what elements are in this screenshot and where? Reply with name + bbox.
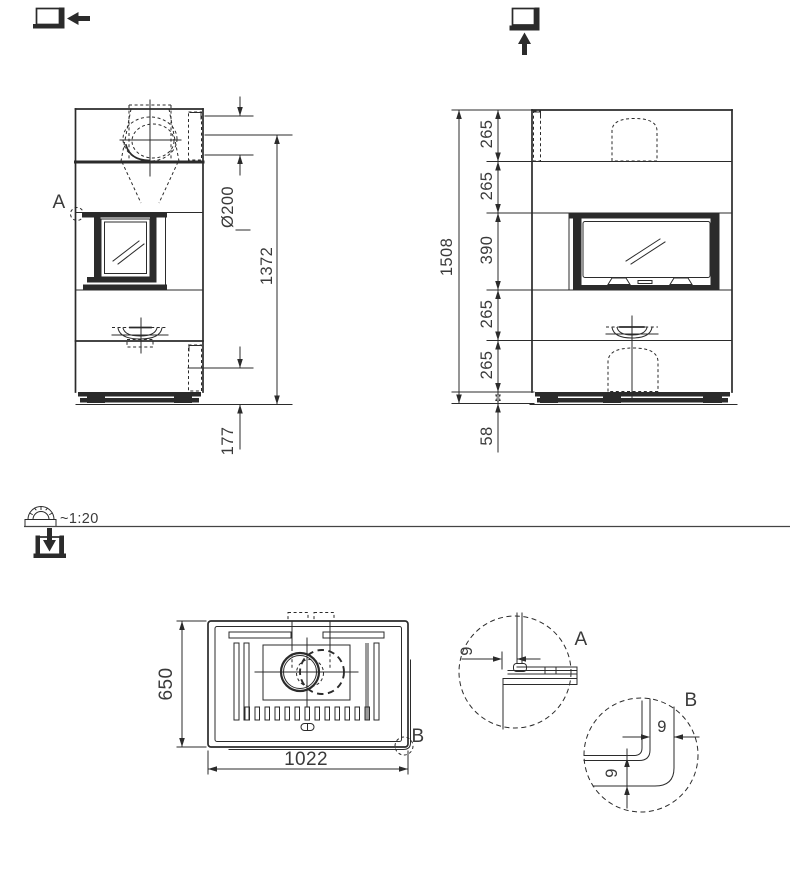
glass-pane	[101, 219, 150, 277]
base-plinth	[76, 392, 204, 405]
side-view-icon	[33, 8, 90, 29]
dim-gap-b-vertical: 9	[603, 768, 621, 778]
flue-circle-inner	[132, 124, 174, 158]
dim-depth: 650	[156, 668, 177, 701]
door-top-band	[569, 213, 719, 219]
air-intake-bowl	[112, 318, 168, 353]
door-bottom-band	[573, 285, 719, 290]
dim-base-height: 58	[478, 426, 496, 445]
section-label-b: B	[411, 726, 424, 747]
tile-outer-face	[584, 699, 650, 761]
front-view-icon	[510, 8, 540, 56]
plan-view-icon	[34, 528, 67, 558]
dim-width: 1022	[284, 749, 328, 770]
scale-indicator: ~1:20	[25, 507, 99, 528]
dim-height-flue-center: 1372	[258, 247, 276, 285]
side-slot	[234, 643, 239, 720]
door-side-profile	[76, 212, 204, 290]
flue-dome-top	[612, 119, 657, 162]
dim-gap-a: 9	[458, 646, 476, 656]
glass-reflection	[113, 241, 144, 264]
detail-b-dimensions: 9 9	[603, 718, 699, 808]
side-slot	[374, 643, 379, 720]
detail-b: B 9 9	[584, 690, 699, 812]
detail-label-a: A	[574, 629, 587, 650]
flue-dome-bottom	[608, 348, 658, 392]
view-cube-thick-base	[34, 554, 67, 559]
air-intake-bowl	[606, 316, 658, 401]
handle-knob	[301, 724, 314, 731]
detail-circle	[459, 616, 571, 728]
flue-outlet-hidden	[120, 100, 181, 203]
glass-pane	[583, 222, 710, 278]
door-handle	[638, 281, 652, 284]
dim-overall-height: 1508	[438, 238, 456, 276]
glass-edge-section	[517, 613, 522, 663]
detail-label-b: B	[684, 690, 697, 711]
foot	[174, 397, 192, 404]
section-marker-a	[71, 208, 84, 221]
dim-segment-2: 265	[478, 172, 496, 201]
side-view: A Ø200 1372 177	[52, 97, 292, 455]
dim-gap-b-horizontal: 9	[657, 718, 667, 736]
foot	[603, 397, 621, 404]
scale-text: ~1:20	[60, 511, 99, 527]
door-frame-right	[150, 218, 157, 282]
vent-slot	[323, 632, 384, 638]
tile-inner-face	[584, 701, 642, 756]
front-grill-slots	[245, 707, 370, 720]
door-frame-right	[711, 219, 720, 286]
arrow-up-icon	[518, 33, 531, 56]
foot	[87, 397, 105, 404]
door-frame-left	[573, 219, 582, 286]
section-label-a: A	[52, 192, 65, 213]
dim-segment-5: 265	[478, 351, 496, 380]
dim-segment-3: 390	[478, 236, 496, 265]
detail-a-dimension: 9	[458, 646, 540, 669]
detail-a-geometry	[503, 613, 577, 729]
front-view-dimensions: 265 265 390 265 265 58 1508	[438, 110, 534, 452]
technical-drawing-sheet: A Ø200 1372 177	[0, 0, 797, 872]
front-view: 265 265 390 265 265 58 1508	[438, 110, 737, 452]
view-cube-thick-base	[510, 26, 540, 31]
flue-opening	[255, 638, 358, 706]
ruler-icon	[25, 520, 56, 527]
chimney-strip-top	[189, 112, 202, 160]
view-cube-outline	[513, 9, 535, 26]
foot	[703, 397, 722, 404]
side-strip-hidden	[534, 111, 541, 161]
dim-segment-1: 265	[478, 120, 496, 149]
arrow-down-icon	[43, 528, 56, 552]
glass-reflection	[626, 239, 665, 264]
door-sill	[92, 278, 157, 283]
dim-plinth-height: 177	[219, 427, 237, 456]
dim-flue-diameter: Ø200	[219, 186, 237, 228]
door-front	[569, 213, 719, 291]
detail-b-geometry	[584, 699, 674, 786]
top-view-dimensions: 650 1022	[156, 621, 408, 774]
view-cube-outline	[37, 9, 60, 25]
vent-slot	[229, 632, 291, 638]
dim-segment-4: 265	[478, 300, 496, 329]
detail-a: A 9	[458, 613, 588, 729]
stove-dimension-drawing: A Ø200 1372 177	[0, 0, 797, 872]
door-top-plate	[82, 212, 167, 218]
glass-front-edge	[94, 218, 101, 282]
top-view: B 650 1022	[156, 613, 425, 775]
base-plinth	[530, 392, 737, 405]
view-cube-thick-base	[33, 24, 65, 29]
door-bottom-plate	[83, 285, 167, 290]
foot	[540, 397, 558, 404]
arrow-left-icon	[67, 12, 90, 25]
